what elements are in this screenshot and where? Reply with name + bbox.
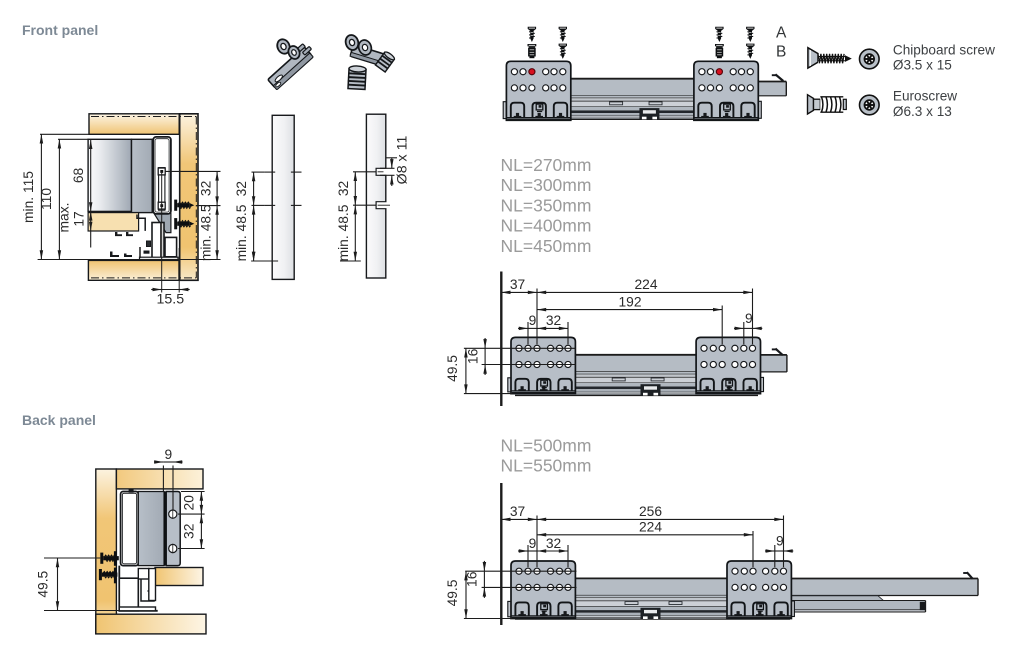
svg-text:NL=400mm: NL=400mm [501,216,592,236]
svg-text:Ø6.3 x 13: Ø6.3 x 13 [893,104,952,119]
svg-text:16: 16 [465,348,480,364]
svg-text:min. 48.5: min. 48.5 [336,204,351,261]
svg-text:32: 32 [546,536,561,551]
svg-text:32: 32 [336,181,351,196]
svg-text:15.5: 15.5 [156,292,184,308]
svg-text:Ø3.5 x 15: Ø3.5 x 15 [893,58,952,73]
svg-text:B: B [776,44,786,61]
svg-text:9: 9 [776,533,784,548]
svg-text:NL=270mm: NL=270mm [501,155,592,175]
svg-text:17: 17 [72,211,87,226]
svg-text:Euroscrew: Euroscrew [893,89,957,104]
svg-text:49.5: 49.5 [445,579,460,606]
svg-text:9: 9 [745,311,753,326]
svg-text:Front panel: Front panel [22,22,98,38]
svg-text:Chipboard screw: Chipboard screw [893,42,995,57]
svg-text:110: 110 [39,188,54,210]
svg-text:max.: max. [57,203,72,233]
svg-text:NL=350mm: NL=350mm [501,195,592,215]
svg-text:9: 9 [529,536,537,551]
svg-text:min. 48.5: min. 48.5 [199,204,214,261]
svg-text:32: 32 [546,313,561,328]
svg-text:9: 9 [164,447,172,462]
svg-text:A: A [776,25,787,42]
svg-text:32: 32 [182,524,197,539]
svg-text:min. 48.5: min. 48.5 [234,204,249,261]
svg-text:NL=450mm: NL=450mm [501,236,592,256]
svg-text:20: 20 [182,495,197,511]
svg-text:224: 224 [639,520,662,535]
svg-text:NL=300mm: NL=300mm [501,175,592,195]
svg-text:NL=550mm: NL=550mm [501,456,592,476]
svg-text:Back panel: Back panel [22,412,96,428]
svg-text:49.5: 49.5 [445,355,460,382]
svg-text:32: 32 [234,181,249,196]
svg-text:37: 37 [510,277,525,292]
svg-text:49.5: 49.5 [36,570,51,597]
svg-text:37: 37 [510,504,525,519]
svg-text:NL=500mm: NL=500mm [501,435,592,455]
svg-text:Ø8 x 11: Ø8 x 11 [395,136,411,185]
svg-text:224: 224 [634,277,657,292]
svg-text:256: 256 [639,504,662,519]
svg-text:192: 192 [618,294,641,309]
svg-text:32: 32 [199,181,214,196]
svg-text:9: 9 [529,313,537,328]
svg-text:68: 68 [71,168,86,184]
svg-text:min. 115: min. 115 [21,171,36,223]
